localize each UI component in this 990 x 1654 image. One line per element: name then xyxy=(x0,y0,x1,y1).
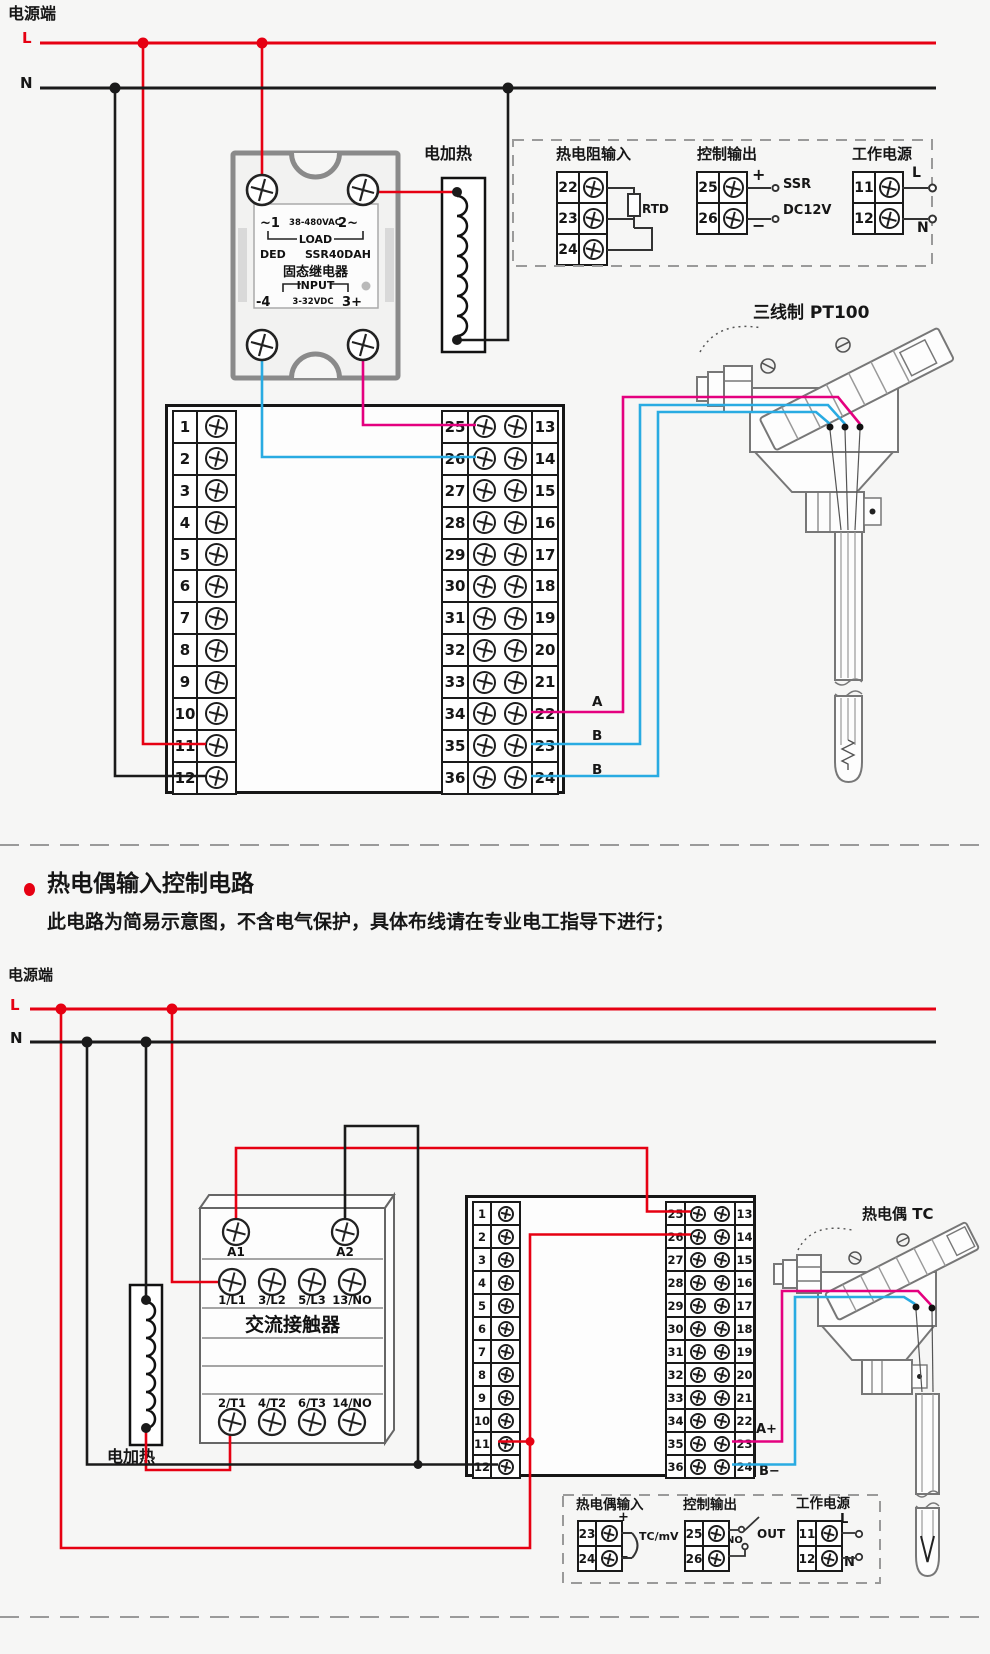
controller-terminal-block-rtd: 123456789101112 251326142715281629173018… xyxy=(165,404,565,794)
terminal-cell xyxy=(500,635,531,665)
control-output-title-top: 控制输出 xyxy=(697,146,757,163)
terminal-screw-icon xyxy=(583,208,604,229)
terminal-number: 31 xyxy=(667,1341,686,1362)
terminal-row: 7 xyxy=(172,601,237,635)
terminal-screw-icon xyxy=(714,1390,730,1406)
terminal-number: 23 xyxy=(558,204,580,233)
terminal-screw-icon xyxy=(690,1436,706,1452)
terminal-row: 3422 xyxy=(665,1408,755,1433)
terminal-row: 3018 xyxy=(441,569,559,603)
contactor-labels: A1 A2 1/L1 3/L2 5/L3 13/NO 交流接触器 2/T1 4/… xyxy=(218,1245,372,1410)
terminal-cell xyxy=(198,603,235,633)
terminal-number: 16 xyxy=(734,1272,753,1293)
terminal-screw-icon xyxy=(498,1390,514,1406)
terminal-column-left-tc: 123456789101112 xyxy=(472,1201,521,1479)
terminal-screw-icon xyxy=(690,1229,706,1245)
terminal-row: 2614 xyxy=(665,1224,755,1249)
terminal-row: 3523 xyxy=(665,1431,755,1456)
terminal-cell xyxy=(469,603,500,633)
ground-wire-dotted-icon xyxy=(798,1228,852,1250)
terminal-number: 13 xyxy=(531,412,557,442)
terminal-row: 3220 xyxy=(441,633,559,667)
terminal-cell xyxy=(492,1318,519,1339)
work-power-title-top: 工作电源 xyxy=(852,146,912,163)
terminal-cell xyxy=(686,1249,710,1270)
ssr-out-line1-label: SSR xyxy=(783,178,811,193)
svg-text:3+: 3+ xyxy=(342,295,362,310)
terminal-cell xyxy=(686,1203,710,1224)
terminal-column-right-rtd: 2513261427152816291730183119322033213422… xyxy=(441,410,559,795)
heater-element-top xyxy=(442,178,485,352)
terminal-row: 3119 xyxy=(441,601,559,635)
terminal-screw-icon xyxy=(601,1525,618,1542)
terminal-row: 10 xyxy=(472,1408,521,1433)
terminal-cell xyxy=(500,412,531,442)
svg-text:2~: 2~ xyxy=(338,216,358,231)
terminal-screw-icon xyxy=(723,208,744,229)
terminal-number: 36 xyxy=(443,763,469,793)
terminal-row: 1 xyxy=(172,410,237,444)
terminal-cell xyxy=(492,1203,519,1224)
terminal-screw-icon xyxy=(879,208,900,229)
terminal-row: 2513 xyxy=(665,1201,755,1226)
terminal-screw-icon xyxy=(205,415,228,438)
terminal-cell xyxy=(710,1272,734,1293)
terminal-screw-icon xyxy=(504,511,527,534)
power-terminal-label-top: 电源端 xyxy=(8,5,56,23)
terminal-number: 5 xyxy=(474,1295,492,1316)
wire-label-b-minus: B− xyxy=(759,1465,780,1480)
terminal-number: 25 xyxy=(443,412,469,442)
line-n-label-top: N xyxy=(20,75,33,92)
terminal-cell xyxy=(500,731,531,761)
terminal-cell xyxy=(710,1387,734,1408)
terminal-screw-icon xyxy=(205,575,228,598)
tc-input-title: 热电偶输入 xyxy=(576,1498,644,1514)
controller-terminal-block-tc: 123456789101112 251326142715281629173018… xyxy=(465,1195,756,1477)
svg-text:DED: DED xyxy=(260,248,286,261)
control-output-title-bottom: 控制输出 xyxy=(683,1498,737,1514)
ssr-out-plus-label: + xyxy=(752,166,765,184)
work-power-terminals-bottom: 1112 xyxy=(797,1520,843,1572)
terminal-number: 6 xyxy=(174,571,198,601)
ac-contactor xyxy=(200,1195,394,1443)
svg-text:5/L3: 5/L3 xyxy=(298,1293,326,1307)
terminal-screw-icon xyxy=(205,734,228,757)
terminal-screw-icon xyxy=(690,1252,706,1268)
terminal-cell xyxy=(198,571,235,601)
terminal-number: 13 xyxy=(734,1203,753,1224)
terminal-cell xyxy=(469,731,500,761)
terminal-screw-icon xyxy=(473,415,496,438)
terminal-cell xyxy=(876,204,902,233)
terminal-screw-icon xyxy=(498,1229,514,1245)
terminal-number: 4 xyxy=(174,508,198,538)
terminal-screw-icon xyxy=(504,671,527,694)
terminal-row: 11 xyxy=(172,729,237,763)
terminal-screw-icon xyxy=(714,1298,730,1314)
terminal-cell xyxy=(198,635,235,665)
terminal-cell xyxy=(469,763,500,793)
terminal-row: 22 xyxy=(556,171,608,204)
terminal-screw-icon xyxy=(473,607,496,630)
terminal-cell xyxy=(710,1410,734,1431)
terminal-cell xyxy=(710,1203,734,1224)
terminal-screw-icon xyxy=(690,1298,706,1314)
terminal-number: 8 xyxy=(474,1364,492,1385)
terminal-screw-icon xyxy=(504,575,527,598)
terminal-number: 26 xyxy=(667,1226,686,1247)
terminal-cell xyxy=(710,1318,734,1339)
terminal-cell xyxy=(469,540,500,570)
ssr-out-line2-label: DC12V xyxy=(783,204,831,219)
heater-coil-icon xyxy=(457,196,467,336)
terminal-number: 32 xyxy=(667,1364,686,1385)
terminal-cell xyxy=(817,1547,841,1570)
terminal-screw-icon xyxy=(504,447,527,470)
terminal-cell xyxy=(469,444,500,474)
terminal-cell xyxy=(686,1318,710,1339)
terminal-row: 23 xyxy=(556,202,608,235)
terminal-number: 30 xyxy=(443,571,469,601)
svg-text:4/T2: 4/T2 xyxy=(258,1396,286,1410)
terminal-number: 9 xyxy=(174,667,198,697)
terminal-screw-icon xyxy=(821,1525,838,1542)
terminal-cell xyxy=(198,444,235,474)
terminal-number: 9 xyxy=(474,1387,492,1408)
terminal-screw-icon xyxy=(205,639,228,662)
terminal-number: 2 xyxy=(174,444,198,474)
svg-text:2/T1: 2/T1 xyxy=(218,1396,246,1410)
svg-text:INPUT: INPUT xyxy=(297,279,335,292)
terminal-row: 12 xyxy=(797,1545,843,1572)
terminal-row: 2917 xyxy=(665,1293,755,1318)
terminal-number: 30 xyxy=(667,1318,686,1339)
terminal-cell xyxy=(198,412,235,442)
terminal-number: 19 xyxy=(531,603,557,633)
terminal-row: 2816 xyxy=(665,1270,755,1295)
terminal-cell xyxy=(710,1456,734,1477)
terminal-number: 34 xyxy=(667,1410,686,1431)
terminal-number: 32 xyxy=(443,635,469,665)
svg-text:-4: -4 xyxy=(256,295,270,310)
terminal-number: 11 xyxy=(474,1433,492,1454)
terminal-number: 27 xyxy=(667,1249,686,1270)
ssr-terminal-screws xyxy=(247,175,378,360)
terminal-row: 8 xyxy=(172,633,237,667)
terminal-cell xyxy=(492,1456,519,1477)
terminal-screw-icon xyxy=(498,1298,514,1314)
terminal-cell xyxy=(686,1410,710,1431)
terminal-row: 26 xyxy=(684,1545,730,1572)
terminal-number: 12 xyxy=(799,1547,817,1570)
terminal-row: 11 xyxy=(472,1431,521,1456)
terminal-screw-icon xyxy=(601,1550,618,1567)
terminal-cell xyxy=(492,1249,519,1270)
terminal-cell xyxy=(710,1295,734,1316)
terminal-row: 5 xyxy=(172,538,237,572)
terminal-screw-icon xyxy=(473,671,496,694)
terminal-number: 24 xyxy=(579,1547,597,1570)
line-l-label-top: L xyxy=(22,30,32,47)
terminal-cell xyxy=(492,1226,519,1247)
terminal-number: 22 xyxy=(558,173,580,202)
terminal-row: 10 xyxy=(172,697,237,731)
terminal-screw-icon xyxy=(723,177,744,198)
heater-label-top: 电加热 xyxy=(424,145,472,163)
terminal-cell xyxy=(686,1226,710,1247)
terminal-cell xyxy=(710,1364,734,1385)
terminal-row: 9 xyxy=(472,1385,521,1410)
terminal-cell xyxy=(492,1410,519,1431)
terminal-number: 29 xyxy=(443,540,469,570)
terminal-cell xyxy=(469,699,500,729)
terminal-screw-icon xyxy=(498,1459,514,1475)
terminal-number: 21 xyxy=(734,1387,753,1408)
terminal-row: 9 xyxy=(172,665,237,699)
terminal-screw-icon xyxy=(473,447,496,470)
terminal-number: 6 xyxy=(474,1318,492,1339)
terminal-cell xyxy=(876,173,902,202)
terminal-screw-icon xyxy=(504,766,527,789)
terminal-row: 3018 xyxy=(665,1316,755,1341)
terminal-screw-icon xyxy=(583,177,604,198)
terminal-screw-icon xyxy=(473,479,496,502)
terminal-number: 17 xyxy=(531,540,557,570)
terminal-row: 2614 xyxy=(441,442,559,476)
terminal-row: 12 xyxy=(472,1454,521,1479)
terminal-screw-icon xyxy=(690,1275,706,1291)
terminal-cell xyxy=(580,204,606,233)
terminal-number: 14 xyxy=(531,444,557,474)
terminal-number: 28 xyxy=(667,1272,686,1293)
terminal-cell xyxy=(500,444,531,474)
terminal-cell xyxy=(710,1433,734,1454)
terminal-number: 26 xyxy=(686,1547,704,1570)
svg-text:A1: A1 xyxy=(227,1245,245,1259)
contactor-terminal-screws xyxy=(219,1219,365,1435)
terminal-screw-icon xyxy=(504,479,527,502)
terminal-cell xyxy=(500,763,531,793)
svg-text:3-32VDC: 3-32VDC xyxy=(292,297,333,307)
terminal-screw-icon xyxy=(690,1321,706,1337)
control-output-terminals-top: 2526 xyxy=(696,171,748,235)
terminal-screw-icon xyxy=(714,1275,730,1291)
line-n-label-bottom: N xyxy=(10,1030,23,1047)
terminal-row: 24 xyxy=(577,1545,623,1572)
terminal-screw-icon xyxy=(473,766,496,789)
terminal-row: 6 xyxy=(172,569,237,603)
terminal-row: 3321 xyxy=(665,1385,755,1410)
terminal-cell xyxy=(597,1547,621,1570)
terminal-screw-icon xyxy=(714,1367,730,1383)
terminal-number: 18 xyxy=(734,1318,753,1339)
svg-text:固态继电器: 固态继电器 xyxy=(283,264,349,280)
terminal-number: 25 xyxy=(667,1203,686,1224)
terminal-number: 7 xyxy=(474,1341,492,1362)
svg-text:38-480VAC: 38-480VAC xyxy=(289,218,341,228)
terminal-cell xyxy=(710,1226,734,1247)
terminal-number: 35 xyxy=(443,731,469,761)
terminal-row: 23 xyxy=(577,1520,623,1547)
terminal-row: 3 xyxy=(172,474,237,508)
terminal-cell xyxy=(198,540,235,570)
wiring-diagram-page: 电源端 L N 电加热 + DC12V − PID控制输出 SSR驱动电压 三线… xyxy=(0,0,990,1654)
terminal-number: 4 xyxy=(474,1272,492,1293)
terminal-number: 15 xyxy=(531,476,557,506)
terminal-screw-icon xyxy=(205,607,228,630)
terminal-number: 31 xyxy=(443,603,469,633)
terminal-screw-icon xyxy=(498,1275,514,1291)
terminal-row: 11 xyxy=(852,171,904,204)
terminal-row: 3422 xyxy=(441,697,559,731)
terminal-number: 17 xyxy=(734,1295,753,1316)
terminal-screw-icon xyxy=(473,639,496,662)
ground-wire-dotted-icon xyxy=(700,326,762,352)
terminal-screw-icon xyxy=(205,702,228,725)
terminal-cell xyxy=(492,1341,519,1362)
terminal-number: 2 xyxy=(474,1226,492,1247)
terminal-number: 35 xyxy=(667,1433,686,1454)
terminal-screw-icon xyxy=(205,543,228,566)
terminal-cell xyxy=(469,508,500,538)
terminal-row: 11 xyxy=(797,1520,843,1547)
power-terminal-label-bottom: 电源端 xyxy=(8,967,53,984)
terminal-screw-icon xyxy=(498,1436,514,1452)
terminal-cell xyxy=(469,571,500,601)
terminal-screw-icon xyxy=(498,1367,514,1383)
terminal-screw-icon xyxy=(714,1459,730,1475)
terminal-screw-icon xyxy=(498,1344,514,1360)
pt100-sensor xyxy=(697,326,954,782)
terminal-screw-icon xyxy=(473,702,496,725)
rtd-input-title: 热电阻输入 xyxy=(556,146,631,163)
terminal-row: 12 xyxy=(172,761,237,795)
terminal-screw-icon xyxy=(690,1206,706,1222)
terminal-number: 11 xyxy=(174,731,198,761)
terminal-number: 10 xyxy=(174,699,198,729)
svg-text:交流接触器: 交流接触器 xyxy=(245,1313,341,1336)
terminal-cell xyxy=(469,476,500,506)
terminal-cell xyxy=(817,1522,841,1545)
terminal-cell xyxy=(492,1364,519,1385)
relay-out-label: OUT xyxy=(757,1528,785,1542)
terminal-row: 3119 xyxy=(665,1339,755,1364)
terminal-number: 11 xyxy=(854,173,876,202)
heater-coil-icon xyxy=(146,1302,155,1428)
tc-input-terminals: 2324 xyxy=(577,1520,623,1572)
terminal-number: 16 xyxy=(531,508,557,538)
terminal-cell xyxy=(580,173,606,202)
wire-label-a-plus: A+ xyxy=(756,1423,777,1438)
terminal-cell xyxy=(720,204,746,233)
terminal-cell xyxy=(198,508,235,538)
control-output-terminals-bottom: 2526 xyxy=(684,1520,730,1572)
svg-text:13/NO: 13/NO xyxy=(332,1293,372,1307)
terminal-screw-icon xyxy=(879,177,900,198)
terminal-row: 25 xyxy=(684,1520,730,1547)
terminal-number: 26 xyxy=(698,204,720,233)
terminal-number: 27 xyxy=(443,476,469,506)
terminal-cell xyxy=(198,699,235,729)
terminal-row: 12 xyxy=(852,202,904,235)
terminal-cell xyxy=(686,1364,710,1385)
terminal-number: 12 xyxy=(174,763,198,793)
terminal-cell xyxy=(686,1295,710,1316)
terminal-cell xyxy=(500,603,531,633)
terminal-screw-icon xyxy=(205,447,228,470)
terminal-cell xyxy=(500,508,531,538)
terminal-cell xyxy=(686,1341,710,1362)
terminal-number: 23 xyxy=(531,731,557,761)
terminal-screw-icon xyxy=(205,479,228,502)
terminal-cell xyxy=(492,1272,519,1293)
terminal-number: 25 xyxy=(698,173,720,202)
ssr-out-minus-label: − xyxy=(752,217,765,235)
terminal-column-right-tc: 2513261427152816291730183119322033213422… xyxy=(665,1201,755,1479)
terminal-screw-icon xyxy=(708,1550,725,1567)
terminal-cell xyxy=(597,1522,621,1545)
terminal-row: 8 xyxy=(472,1362,521,1387)
terminal-number: 18 xyxy=(531,571,557,601)
section-bullet-icon xyxy=(24,883,35,896)
terminal-cell xyxy=(469,635,500,665)
terminal-cell xyxy=(704,1547,728,1570)
terminal-row: 2 xyxy=(472,1224,521,1249)
terminal-number: 8 xyxy=(174,635,198,665)
terminal-screw-icon xyxy=(714,1206,730,1222)
tc-junction-icon xyxy=(921,1536,934,1562)
svg-text:A2: A2 xyxy=(336,1245,354,1259)
terminal-screw-icon xyxy=(714,1436,730,1452)
terminal-screw-icon xyxy=(708,1525,725,1542)
terminal-cell xyxy=(704,1522,728,1545)
svg-text:14/NO: 14/NO xyxy=(332,1396,372,1410)
terminal-cell xyxy=(198,476,235,506)
terminal-number: 21 xyxy=(531,667,557,697)
terminal-number: 22 xyxy=(531,699,557,729)
terminal-cell xyxy=(500,476,531,506)
terminal-number: 12 xyxy=(854,204,876,233)
terminal-number: 1 xyxy=(474,1203,492,1224)
terminal-cell xyxy=(686,1456,710,1477)
terminal-row: 25 xyxy=(696,171,748,204)
terminal-number: 33 xyxy=(667,1387,686,1408)
terminal-cell xyxy=(500,571,531,601)
terminal-row: 26 xyxy=(696,202,748,235)
terminal-screw-icon xyxy=(205,671,228,694)
rtd-symbol-label: RTD xyxy=(642,203,669,217)
wire-label-a: A xyxy=(592,695,602,711)
terminal-number: 3 xyxy=(474,1249,492,1270)
terminal-row: 24 xyxy=(556,233,608,266)
terminal-cell xyxy=(720,173,746,202)
terminal-screw-icon xyxy=(690,1390,706,1406)
terminal-number: 20 xyxy=(734,1364,753,1385)
terminal-cell xyxy=(198,731,235,761)
svg-text:3/L2: 3/L2 xyxy=(258,1293,286,1307)
terminal-cell xyxy=(710,1249,734,1270)
work-power-symbol-top xyxy=(902,185,936,223)
tc-section-title: 热电偶输入控制电路 xyxy=(47,871,254,897)
svg-text:1/L1: 1/L1 xyxy=(218,1293,246,1307)
terminal-screw-icon xyxy=(504,702,527,725)
svg-text:6/T3: 6/T3 xyxy=(298,1396,326,1410)
terminal-row: 7 xyxy=(472,1339,521,1364)
terminal-screw-icon xyxy=(690,1413,706,1429)
terminal-row: 1 xyxy=(472,1201,521,1226)
work-power-title-bottom: 工作电源 xyxy=(796,1497,850,1513)
